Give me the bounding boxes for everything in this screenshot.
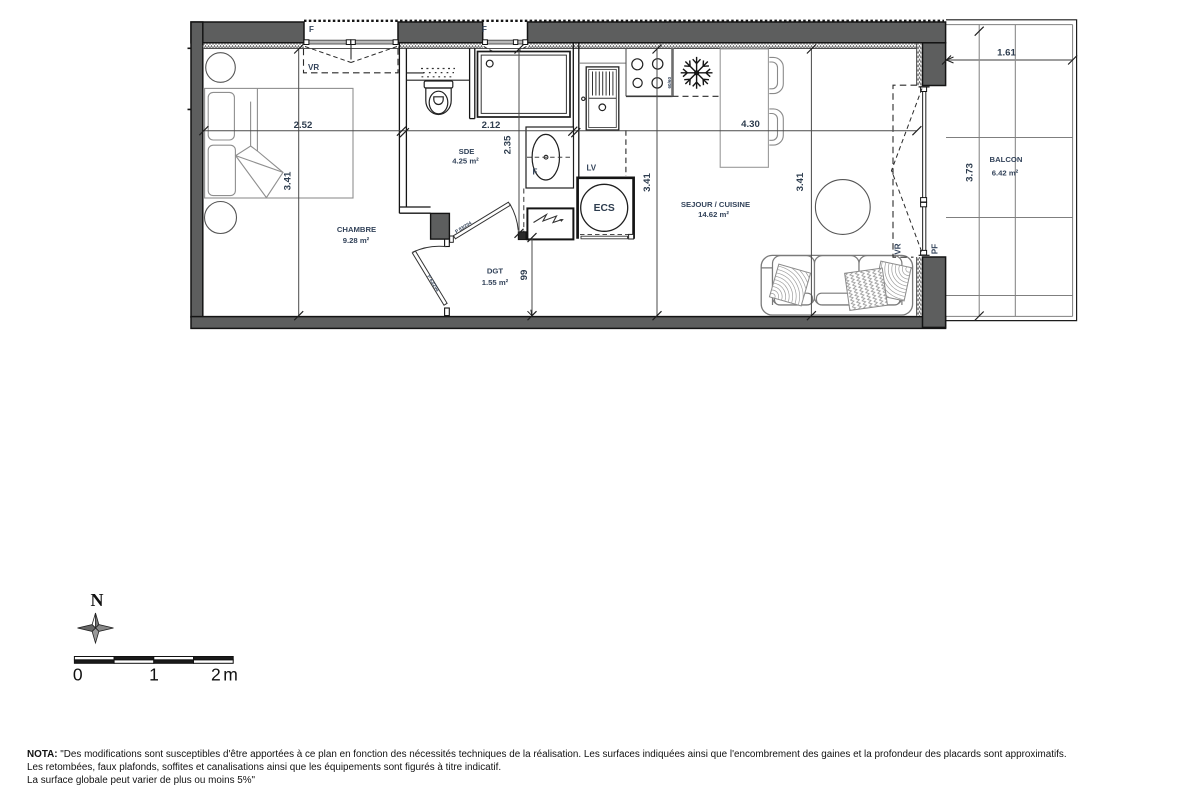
svg-text:60/60: 60/60 (667, 77, 672, 89)
svg-text:0: 0 (73, 665, 83, 685)
svg-text:SEJOUR / CUISINE: SEJOUR / CUISINE (681, 200, 750, 209)
svg-text:3.73: 3.73 (965, 163, 976, 182)
svg-text:6.42 m²: 6.42 m² (992, 168, 1019, 177)
svg-text:3.41: 3.41 (283, 171, 294, 190)
svg-text:F: F (482, 25, 487, 34)
svg-text:CHAMBRE: CHAMBRE (337, 225, 376, 234)
svg-text:1.55 m²: 1.55 m² (482, 278, 509, 287)
svg-text:Les retombées, faux plafonds,: Les retombées, faux plafonds, soffites e… (27, 762, 501, 773)
svg-text:VR: VR (894, 243, 903, 254)
svg-text:3.41: 3.41 (795, 172, 806, 191)
svg-text:NOTA: "Des modifications sont: NOTA: "Des modifications sont susceptibl… (27, 749, 1067, 760)
svg-text:2.52: 2.52 (294, 120, 313, 131)
svg-text:SDE: SDE (459, 147, 475, 156)
svg-text:DGT: DGT (487, 266, 504, 275)
svg-text:1.61: 1.61 (997, 48, 1016, 59)
svg-text:4.30: 4.30 (741, 119, 760, 130)
svg-text:2.12: 2.12 (482, 120, 501, 131)
svg-text:PF: PF (931, 244, 940, 254)
svg-text:14.62 m²: 14.62 m² (698, 210, 729, 219)
svg-text:4.25 m²: 4.25 m² (452, 157, 479, 166)
svg-text:2m: 2m (211, 665, 240, 685)
svg-text:1: 1 (149, 665, 159, 685)
svg-text:3.41: 3.41 (642, 173, 653, 192)
svg-text:VR: VR (308, 63, 319, 72)
svg-text:99: 99 (519, 270, 530, 281)
svg-text:La surface globale peut varier: La surface globale peut varier de plus o… (27, 775, 256, 786)
svg-text:F: F (533, 168, 538, 177)
svg-text:2.35: 2.35 (503, 135, 514, 154)
svg-text:F: F (309, 25, 314, 34)
svg-text:LV: LV (587, 163, 597, 172)
svg-text:N: N (91, 590, 104, 610)
svg-text:BALCON: BALCON (990, 155, 1023, 164)
svg-text:ECS: ECS (594, 203, 615, 214)
svg-text:9.28 m²: 9.28 m² (343, 236, 370, 245)
